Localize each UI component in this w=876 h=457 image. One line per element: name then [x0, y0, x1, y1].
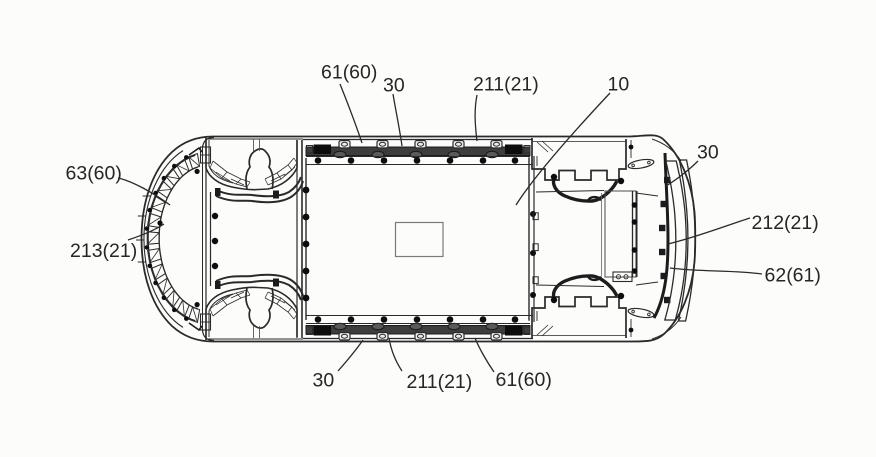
- svg-text:30: 30: [313, 370, 335, 392]
- svg-text:10: 10: [608, 74, 630, 96]
- svg-text:213(21): 213(21): [70, 240, 137, 262]
- svg-text:61(60): 61(60): [321, 62, 377, 84]
- svg-text:211(21): 211(21): [473, 74, 539, 96]
- svg-text:212(21): 212(21): [752, 212, 819, 234]
- svg-text:62(61): 62(61): [765, 265, 821, 287]
- svg-text:211(21): 211(21): [407, 371, 473, 393]
- svg-text:61(60): 61(60): [496, 369, 552, 391]
- svg-text:30: 30: [383, 75, 405, 97]
- svg-text:30: 30: [697, 142, 719, 164]
- svg-text:63(60): 63(60): [66, 163, 122, 185]
